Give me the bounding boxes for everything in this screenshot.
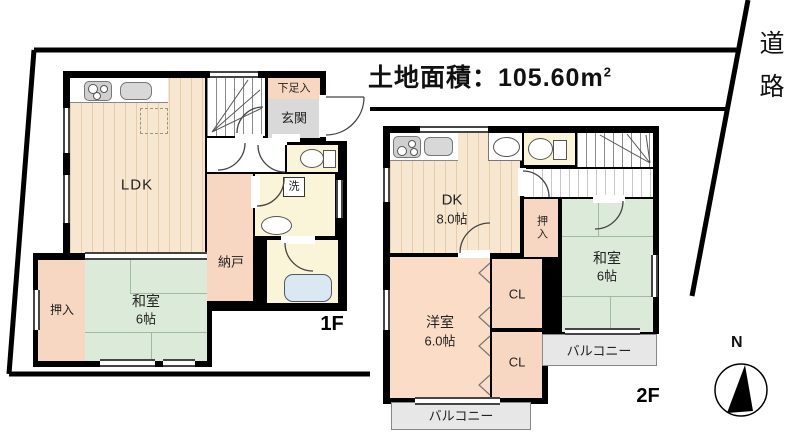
stove-icon bbox=[84, 81, 112, 101]
washitsu-2f-size: 6帖 bbox=[597, 270, 617, 283]
room-toilet-2f bbox=[524, 133, 575, 165]
room-washitsu-1f bbox=[85, 260, 207, 361]
tatami-line bbox=[130, 260, 131, 293]
window bbox=[651, 255, 658, 297]
toilet-bowl-icon bbox=[528, 138, 553, 160]
entrance-door-gap bbox=[319, 95, 329, 137]
burner bbox=[408, 140, 416, 148]
compass-circle bbox=[715, 364, 767, 416]
floor2-label: 2F bbox=[636, 386, 659, 406]
land-area-text: 土地面積：105.60 bbox=[368, 64, 580, 92]
window bbox=[33, 290, 40, 330]
door-gap bbox=[281, 236, 315, 244]
sliding-door-band bbox=[85, 252, 207, 260]
room-toilet-1f bbox=[287, 145, 338, 172]
balcony-right-label: バルコニー bbox=[567, 345, 632, 358]
north-compass bbox=[715, 364, 767, 416]
burner bbox=[100, 85, 108, 93]
window bbox=[210, 71, 258, 78]
toilet-bowl-icon bbox=[300, 149, 324, 168]
land-area-unit-exp: 2 bbox=[604, 65, 612, 80]
tatami-line bbox=[610, 296, 611, 332]
land-area-title: 土地面積：105.60m2 bbox=[368, 58, 612, 94]
stove-icon bbox=[393, 136, 421, 158]
washbasin-box-2f bbox=[488, 133, 522, 161]
ldk-label: LDK bbox=[121, 178, 153, 193]
road-label: 道路 bbox=[752, 30, 788, 116]
tatami-line bbox=[151, 332, 152, 361]
door-gap bbox=[593, 195, 625, 203]
window bbox=[63, 108, 70, 153]
window bbox=[63, 175, 70, 223]
kitchen-sink-icon bbox=[424, 137, 453, 156]
land-area-unit: m bbox=[580, 64, 603, 92]
floor1-label: 1F bbox=[320, 314, 343, 334]
balcony-door bbox=[565, 328, 640, 335]
road-boundary-line bbox=[692, 0, 748, 296]
washitsu-1f-name: 和室 bbox=[132, 294, 160, 308]
room-nando bbox=[207, 174, 253, 301]
burner bbox=[410, 148, 418, 156]
bathtub-icon bbox=[284, 274, 332, 302]
window bbox=[383, 290, 390, 330]
dk-size: 8.0帖 bbox=[436, 213, 467, 226]
tatami-line bbox=[85, 332, 207, 333]
youshitsu-size: 6.0帖 bbox=[424, 335, 455, 348]
shoe-cabinet-label: 下足入 bbox=[278, 84, 311, 95]
dk-name: DK bbox=[442, 193, 463, 208]
window bbox=[336, 180, 343, 218]
window bbox=[420, 126, 488, 133]
refrigerator-outline bbox=[140, 108, 168, 134]
washitsu-1f-size: 6帖 bbox=[136, 313, 156, 326]
washitsu-2f-name: 和室 bbox=[593, 251, 621, 265]
kitchen-counter-1f bbox=[70, 78, 168, 103]
balcony-door bbox=[415, 397, 500, 405]
washbasin-icon bbox=[261, 216, 292, 235]
genkan-label: 玄関 bbox=[281, 112, 307, 125]
site-boundary-left bbox=[9, 50, 34, 374]
washbasin-icon bbox=[493, 137, 520, 157]
burner bbox=[93, 92, 101, 100]
kitchen-counter-2f bbox=[390, 133, 458, 161]
burner bbox=[397, 146, 407, 156]
window bbox=[163, 359, 195, 367]
door-gap bbox=[458, 250, 490, 258]
wash-label: 洗 bbox=[289, 182, 300, 193]
youshitsu-name: 洋室 bbox=[426, 315, 454, 329]
floor-plan-page: 土地面積：105.60m2 道路 N LDK 和室 6帖 押入 納戸 玄関 下足… bbox=[0, 0, 795, 440]
toilet-tank-icon bbox=[553, 140, 567, 160]
toilet-tank-icon bbox=[323, 150, 336, 168]
closet2-label: CL bbox=[509, 356, 526, 369]
stairs-2f bbox=[577, 133, 653, 167]
compass-north-label: N bbox=[731, 334, 743, 352]
entrance-porch bbox=[326, 69, 350, 141]
tatami-line bbox=[598, 199, 599, 236]
balcony-bottom-label: バルコニー bbox=[429, 410, 494, 423]
door-gap bbox=[518, 168, 526, 196]
door-gap bbox=[235, 134, 263, 142]
window bbox=[100, 359, 155, 367]
closet1-label: CL bbox=[509, 288, 526, 301]
nando-label: 納戸 bbox=[218, 256, 244, 269]
kitchen-sink-icon bbox=[120, 82, 152, 100]
tatami-line bbox=[562, 236, 653, 237]
tatami-line bbox=[562, 296, 653, 297]
stairs-1f bbox=[207, 78, 265, 136]
oshiire-1f-label: 押入 bbox=[50, 304, 74, 316]
corridor-2f bbox=[524, 169, 653, 197]
window bbox=[383, 168, 390, 202]
oshiire-2f-label: 押入 bbox=[536, 215, 547, 241]
door-gap bbox=[251, 176, 260, 208]
room-ldk bbox=[70, 78, 205, 253]
compass-needle bbox=[727, 365, 753, 413]
room-bath-1f bbox=[267, 240, 338, 303]
